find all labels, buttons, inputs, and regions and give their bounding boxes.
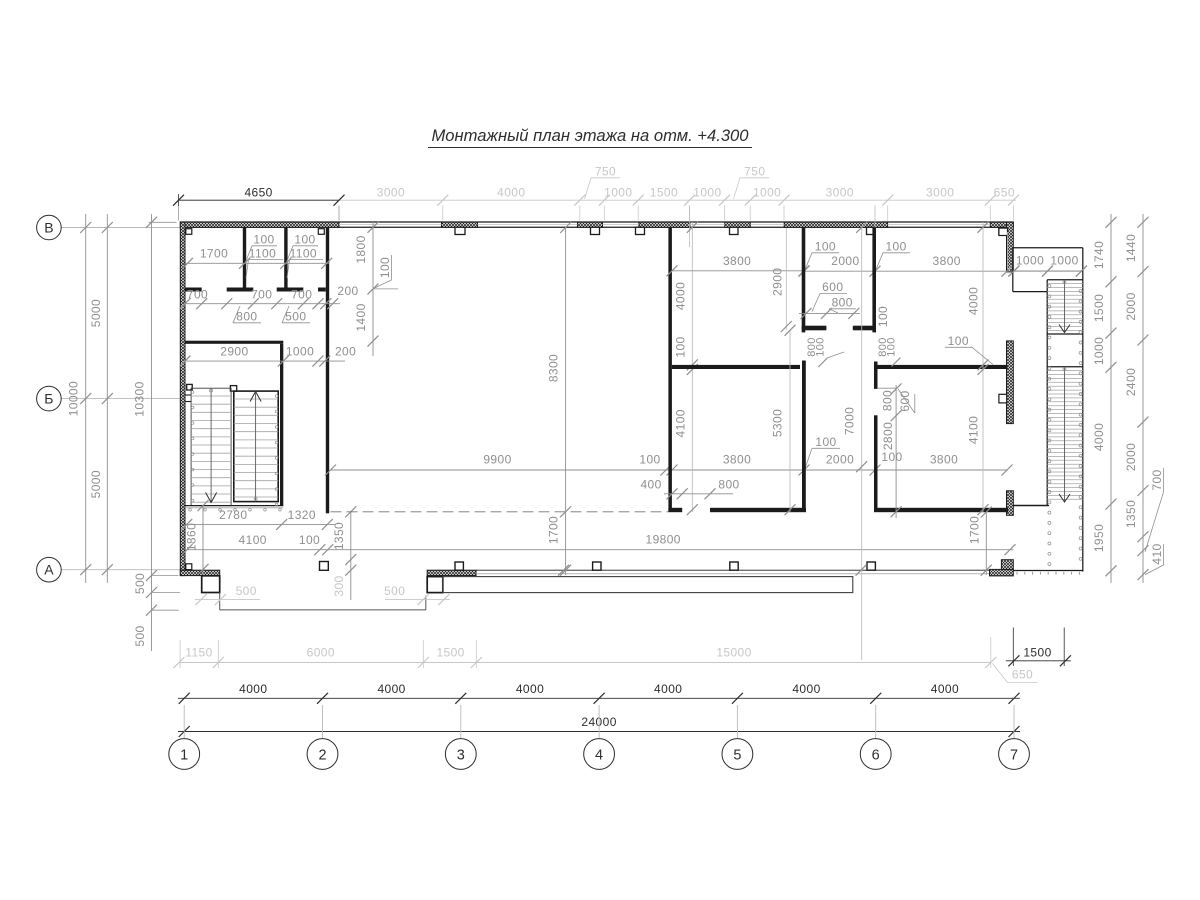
svg-text:100: 100 <box>886 337 898 357</box>
svg-text:1000: 1000 <box>753 186 781 200</box>
svg-text:500: 500 <box>133 573 147 594</box>
svg-text:1860: 1860 <box>185 523 199 551</box>
svg-text:1000: 1000 <box>1050 254 1078 268</box>
svg-text:1950: 1950 <box>1092 524 1106 552</box>
svg-text:5000: 5000 <box>89 470 103 498</box>
svg-text:9900: 9900 <box>483 453 511 467</box>
svg-text:1100: 1100 <box>249 247 276 261</box>
svg-text:4000: 4000 <box>792 682 820 696</box>
svg-text:300: 300 <box>332 575 346 596</box>
svg-text:800: 800 <box>718 478 739 492</box>
svg-text:5000: 5000 <box>89 299 103 327</box>
svg-text:410: 410 <box>1150 543 1164 564</box>
svg-text:2: 2 <box>318 747 326 763</box>
svg-text:3: 3 <box>457 747 465 763</box>
svg-text:4: 4 <box>595 747 603 763</box>
svg-text:1700: 1700 <box>547 516 561 544</box>
svg-text:3800: 3800 <box>930 453 958 467</box>
svg-text:100: 100 <box>885 240 906 254</box>
svg-text:100: 100 <box>673 336 687 357</box>
svg-text:1000: 1000 <box>604 186 632 200</box>
svg-text:А: А <box>44 562 54 578</box>
svg-text:Монтажный план этажа на отм. +: Монтажный план этажа на отм. +4.300 <box>431 126 749 145</box>
svg-text:1100: 1100 <box>290 247 317 261</box>
svg-text:650: 650 <box>1012 668 1033 682</box>
svg-text:600: 600 <box>822 280 843 294</box>
svg-text:1500: 1500 <box>436 646 464 660</box>
svg-text:700: 700 <box>1150 469 1164 490</box>
svg-text:6: 6 <box>872 747 880 763</box>
svg-text:10300: 10300 <box>133 381 147 416</box>
svg-text:4000: 4000 <box>497 186 525 200</box>
svg-text:5300: 5300 <box>771 409 785 437</box>
svg-text:800: 800 <box>881 390 895 411</box>
svg-text:500: 500 <box>133 625 147 646</box>
svg-text:700: 700 <box>251 288 272 302</box>
svg-text:4100: 4100 <box>673 409 687 437</box>
svg-text:2000: 2000 <box>1124 292 1138 320</box>
svg-text:6000: 6000 <box>307 646 335 660</box>
svg-text:100: 100 <box>299 533 320 547</box>
svg-text:1000: 1000 <box>286 344 314 358</box>
svg-text:2900: 2900 <box>771 268 785 296</box>
svg-text:4000: 4000 <box>654 682 682 696</box>
svg-text:2000: 2000 <box>831 254 859 268</box>
svg-text:4100: 4100 <box>239 533 267 547</box>
svg-text:800: 800 <box>236 310 257 324</box>
svg-text:15000: 15000 <box>716 646 751 660</box>
svg-text:3800: 3800 <box>933 254 961 268</box>
svg-text:4100: 4100 <box>967 416 981 444</box>
svg-text:4000: 4000 <box>931 682 959 696</box>
svg-text:4000: 4000 <box>239 682 267 696</box>
svg-text:200: 200 <box>337 284 358 298</box>
svg-text:1150: 1150 <box>185 646 212 660</box>
svg-text:3800: 3800 <box>723 254 751 268</box>
svg-text:800: 800 <box>832 296 853 310</box>
svg-text:2000: 2000 <box>1124 443 1138 471</box>
svg-text:750: 750 <box>744 165 765 179</box>
svg-text:100: 100 <box>948 334 969 348</box>
svg-text:10000: 10000 <box>67 381 81 416</box>
svg-text:1500: 1500 <box>1023 646 1051 660</box>
svg-text:4000: 4000 <box>673 282 687 310</box>
svg-text:7000: 7000 <box>843 407 857 435</box>
svg-text:4000: 4000 <box>516 682 544 696</box>
svg-text:100: 100 <box>253 233 274 247</box>
svg-text:19800: 19800 <box>646 533 681 547</box>
svg-text:5: 5 <box>733 747 741 763</box>
svg-text:8300: 8300 <box>547 354 561 382</box>
svg-text:4000: 4000 <box>1092 423 1106 451</box>
svg-text:1740: 1740 <box>1092 241 1106 269</box>
svg-text:1700: 1700 <box>200 247 228 261</box>
svg-text:1500: 1500 <box>1092 294 1106 322</box>
svg-text:1500: 1500 <box>650 186 678 200</box>
svg-text:1: 1 <box>180 747 188 763</box>
svg-text:4000: 4000 <box>377 682 405 696</box>
svg-text:2780: 2780 <box>219 508 247 522</box>
svg-text:В: В <box>44 220 53 236</box>
svg-text:3000: 3000 <box>826 186 854 200</box>
svg-text:7: 7 <box>1010 747 1018 763</box>
svg-text:100: 100 <box>881 450 902 464</box>
svg-text:3000: 3000 <box>926 186 954 200</box>
svg-text:2400: 2400 <box>1124 368 1138 396</box>
svg-text:400: 400 <box>640 478 661 492</box>
svg-text:3800: 3800 <box>723 453 751 467</box>
svg-text:700: 700 <box>187 288 208 302</box>
svg-text:1350: 1350 <box>332 522 346 550</box>
svg-text:2800: 2800 <box>881 422 895 450</box>
svg-text:1000: 1000 <box>693 186 721 200</box>
svg-text:500: 500 <box>285 310 306 324</box>
svg-text:1000: 1000 <box>1016 254 1044 268</box>
svg-text:4650: 4650 <box>244 186 272 200</box>
svg-text:500: 500 <box>384 584 405 598</box>
svg-text:600: 600 <box>898 390 912 411</box>
svg-text:4000: 4000 <box>967 287 981 315</box>
svg-text:1000: 1000 <box>1092 337 1106 365</box>
svg-text:750: 750 <box>595 165 616 179</box>
svg-text:100: 100 <box>815 337 827 357</box>
svg-text:100: 100 <box>294 233 315 247</box>
svg-text:700: 700 <box>291 288 312 302</box>
svg-text:100: 100 <box>639 453 660 467</box>
svg-text:1400: 1400 <box>354 303 368 331</box>
svg-text:500: 500 <box>236 584 257 598</box>
svg-text:3000: 3000 <box>377 186 405 200</box>
svg-text:650: 650 <box>994 186 1015 200</box>
svg-text:1700: 1700 <box>968 516 982 544</box>
svg-text:1350: 1350 <box>1124 500 1138 528</box>
svg-text:2000: 2000 <box>826 453 854 467</box>
svg-text:2900: 2900 <box>220 344 248 358</box>
svg-text:1440: 1440 <box>1124 234 1138 262</box>
svg-text:100: 100 <box>815 435 836 449</box>
svg-text:1800: 1800 <box>354 235 368 263</box>
svg-text:200: 200 <box>335 344 356 358</box>
svg-text:100: 100 <box>815 240 836 254</box>
svg-text:1320: 1320 <box>288 508 316 522</box>
svg-text:100: 100 <box>378 257 392 278</box>
svg-text:Б: Б <box>44 391 53 407</box>
svg-text:100: 100 <box>876 306 890 327</box>
